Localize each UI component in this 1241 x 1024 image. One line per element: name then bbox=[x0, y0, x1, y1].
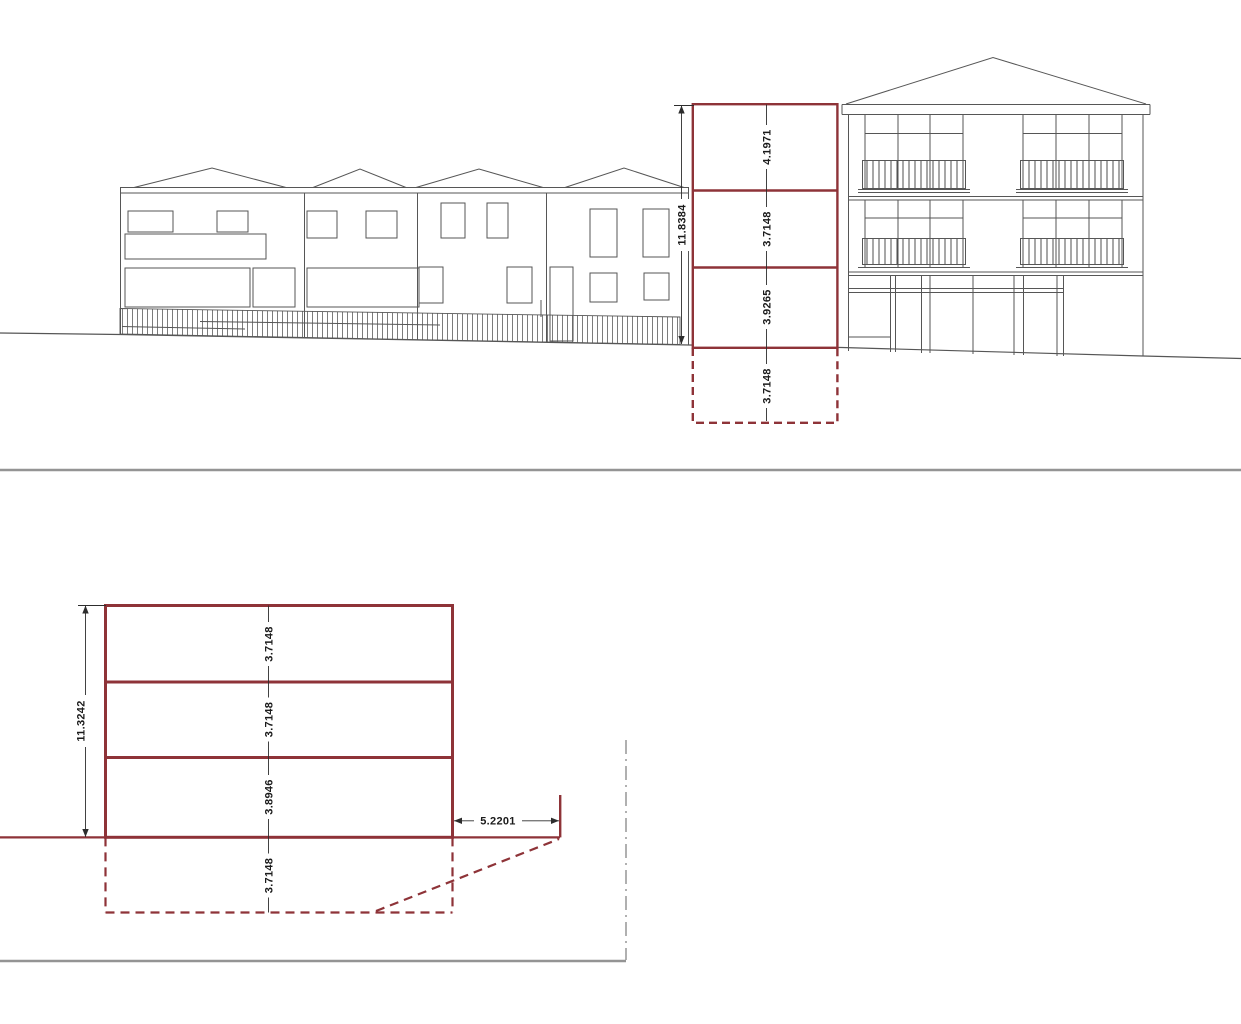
dim-arrow bbox=[454, 818, 462, 824]
dim-side-offset: 5.2201 bbox=[480, 816, 515, 828]
dim-arrow bbox=[678, 106, 684, 114]
dim-arrow bbox=[82, 829, 88, 837]
dim-section-total-height: 11.3242 bbox=[76, 700, 88, 741]
proposal-outline-lower bbox=[0, 606, 560, 913]
architectural-drawing-sheet: 4.1971 3.7148 3.9265 3.7148 11.8384 bbox=[0, 0, 1241, 1024]
section-basement-dashed bbox=[106, 837, 560, 912]
dim-total-height-upper: 11.8384 bbox=[677, 204, 689, 246]
dim-floor3-height: 4.1971 bbox=[762, 129, 774, 164]
balcony-railings bbox=[863, 161, 1124, 265]
dim-section-floor2: 3.7148 bbox=[264, 702, 276, 737]
elevation-and-section-svg: 4.1971 3.7148 3.9265 3.7148 11.8384 bbox=[0, 0, 1241, 1024]
right-building-facade bbox=[849, 115, 1144, 357]
dim-basement-height-upper: 3.7148 bbox=[762, 368, 774, 403]
dim-section-basement: 3.7148 bbox=[264, 858, 276, 893]
dim-section-floor1: 3.8946 bbox=[264, 779, 276, 814]
dim-floor1-height: 3.9265 bbox=[762, 289, 774, 324]
existing-buildings-linework bbox=[0, 58, 1241, 359]
dim-arrow bbox=[82, 606, 88, 614]
terrace-roof-lines bbox=[134, 168, 684, 188]
dim-arrow bbox=[551, 818, 559, 824]
right-building-roof bbox=[842, 58, 1150, 115]
dim-section-floor3: 3.7148 bbox=[264, 626, 276, 661]
shopfronts bbox=[849, 276, 1064, 357]
basement-ramp-dashed bbox=[376, 839, 559, 911]
section-box bbox=[106, 606, 453, 838]
dim-floor2-height: 3.7148 bbox=[762, 211, 774, 246]
